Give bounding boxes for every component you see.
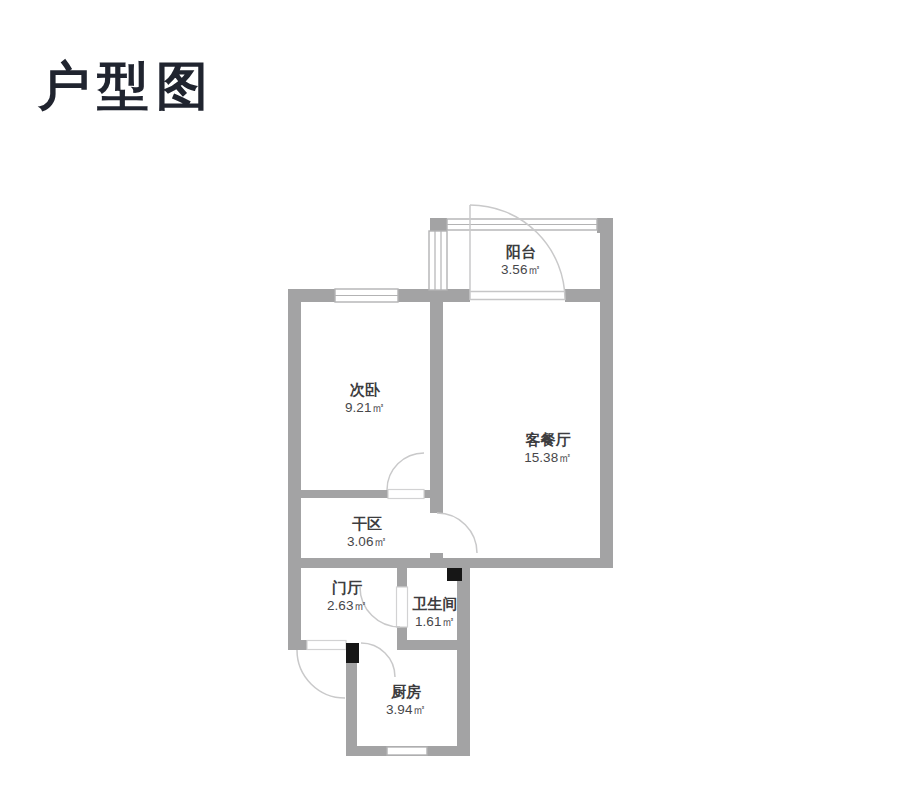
wall-bedroom-top-left bbox=[288, 289, 335, 302]
room-area-living-dining: 15.38㎡ bbox=[524, 449, 571, 467]
room-label-second-bedroom: 次卧 9.21㎡ bbox=[345, 380, 385, 417]
bedroom-door-arc bbox=[387, 453, 424, 490]
pillar-marker-kitchen bbox=[346, 643, 359, 663]
bedroom-door-opening bbox=[388, 490, 424, 499]
entry-door-opening bbox=[307, 641, 346, 650]
room-label-bathroom: 卫生间 1.61㎡ bbox=[413, 594, 458, 631]
wall-bedroom-living-divider bbox=[430, 302, 443, 513]
wall-hall-bath-divider-bottom bbox=[397, 627, 407, 640]
room-area-second-bedroom: 9.21㎡ bbox=[345, 399, 385, 417]
room-name-bathroom: 卫生间 bbox=[413, 594, 458, 613]
floorplan: 阳台 3.56㎡ 次卧 9.21㎡ 客餐厅 15.38㎡ 干区 3.06㎡ 门厅… bbox=[0, 0, 900, 808]
room-label-entry-hall: 门厅 2.63㎡ bbox=[327, 578, 367, 615]
wall-bedroom-bottom-stub bbox=[424, 490, 431, 498]
wall-balcony-bottom-right bbox=[565, 289, 613, 302]
wall-bedroom-bottom bbox=[301, 490, 388, 498]
room-area-entry-hall: 2.63㎡ bbox=[327, 597, 367, 615]
room-label-dry-area: 干区 3.06㎡ bbox=[347, 514, 387, 551]
balcony-left-window bbox=[429, 231, 447, 290]
pillar-marker-bathroom bbox=[447, 568, 462, 581]
bathroom-door-opening bbox=[397, 587, 408, 627]
room-name-living-dining: 客餐厅 bbox=[524, 430, 571, 449]
room-label-balcony: 阳台 3.56㎡ bbox=[501, 242, 541, 279]
wall-right-outer bbox=[600, 218, 613, 568]
wall-left-outer bbox=[288, 289, 301, 650]
floorplan-drawing bbox=[0, 0, 900, 808]
wall-kitchen-left bbox=[346, 663, 357, 746]
room-area-dry-area: 3.06㎡ bbox=[347, 533, 387, 551]
room-area-balcony: 3.56㎡ bbox=[501, 261, 541, 279]
room-name-dry-area: 干区 bbox=[347, 514, 387, 533]
room-name-kitchen: 厨房 bbox=[386, 682, 426, 701]
room-name-entry-hall: 门厅 bbox=[327, 578, 367, 597]
room-label-living-dining: 客餐厅 15.38㎡ bbox=[524, 430, 571, 467]
room-label-kitchen: 厨房 3.94㎡ bbox=[386, 682, 426, 719]
wall-main-horizontal bbox=[288, 558, 613, 568]
entry-door-arc bbox=[297, 650, 345, 698]
wall-bedroom-top-right bbox=[398, 289, 470, 302]
room-area-bathroom: 1.61㎡ bbox=[413, 613, 458, 631]
room-area-kitchen: 3.94㎡ bbox=[386, 701, 426, 719]
kitchen-door-opening bbox=[359, 641, 397, 650]
kitchen-window bbox=[387, 747, 427, 755]
dryarea-door-opening bbox=[429, 513, 444, 553]
wall-bathroom-bottom bbox=[397, 640, 457, 650]
room-name-balcony: 阳台 bbox=[501, 242, 541, 261]
wall-hall-bottom-left bbox=[288, 640, 307, 650]
room-name-second-bedroom: 次卧 bbox=[345, 380, 385, 399]
wall-hall-bath-divider-top bbox=[397, 568, 407, 587]
wall-bath-kitchen-right bbox=[457, 568, 470, 756]
